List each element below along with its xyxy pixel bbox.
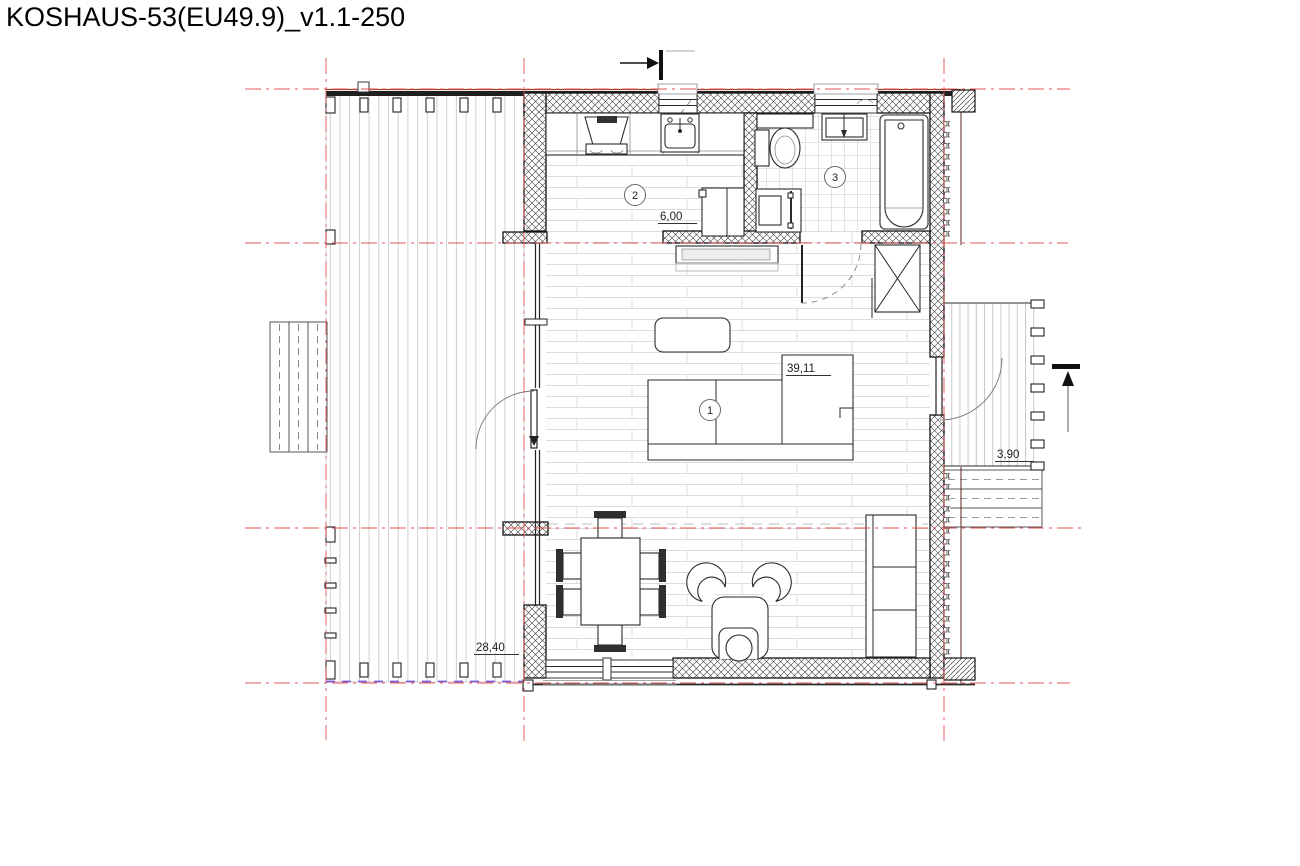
floor-plan: 1 2 3 6,00 39,11 3,90 2 (0, 0, 1300, 866)
shelf (757, 114, 813, 128)
svg-text:39,11: 39,11 (787, 363, 815, 375)
right-terrace (944, 303, 1044, 466)
bathroom-window (815, 93, 877, 113)
corner-block-bottom-right (944, 658, 975, 680)
left-terrace-stair (270, 322, 327, 452)
bottom-window (543, 658, 676, 685)
room-label-1: 1 (700, 400, 721, 421)
left-terrace (326, 95, 524, 682)
svg-text:6,00: 6,00 (660, 211, 682, 223)
section-cut-top-icon (620, 50, 695, 80)
toilet (755, 128, 800, 168)
terrace-post-cap (358, 82, 369, 92)
coffee-table (655, 318, 730, 352)
shelving-unit (866, 515, 916, 657)
wardrobe (872, 245, 920, 318)
room-label-3: 3 (825, 167, 846, 188)
right-terrace-stair (944, 470, 1042, 527)
kitchen-counter (546, 113, 744, 155)
svg-text:28,40: 28,40 (476, 642, 505, 654)
cladding-battens (944, 472, 950, 658)
room-number-3: 3 (832, 172, 838, 184)
svg-text:3,90: 3,90 (997, 449, 1019, 461)
kitchen-sink (661, 114, 699, 152)
fridge-cabinet (699, 188, 744, 236)
room-label-2: 2 (625, 185, 646, 206)
cladding-battens (944, 116, 950, 240)
drawing-sheet: KOSHAUS-53(EU49.9)_v1.1-250 (0, 0, 1300, 866)
washing-machine (756, 189, 801, 232)
stove-hood (585, 116, 628, 154)
corner-block-top-right (952, 90, 975, 112)
bathtub (880, 115, 928, 229)
bathroom-sink (822, 114, 867, 140)
fireplace-stove (712, 597, 768, 661)
room-number-2: 2 (632, 190, 638, 202)
room-number-1: 1 (707, 405, 713, 417)
section-cut-right-icon (1052, 364, 1080, 432)
dining-table (581, 538, 640, 625)
